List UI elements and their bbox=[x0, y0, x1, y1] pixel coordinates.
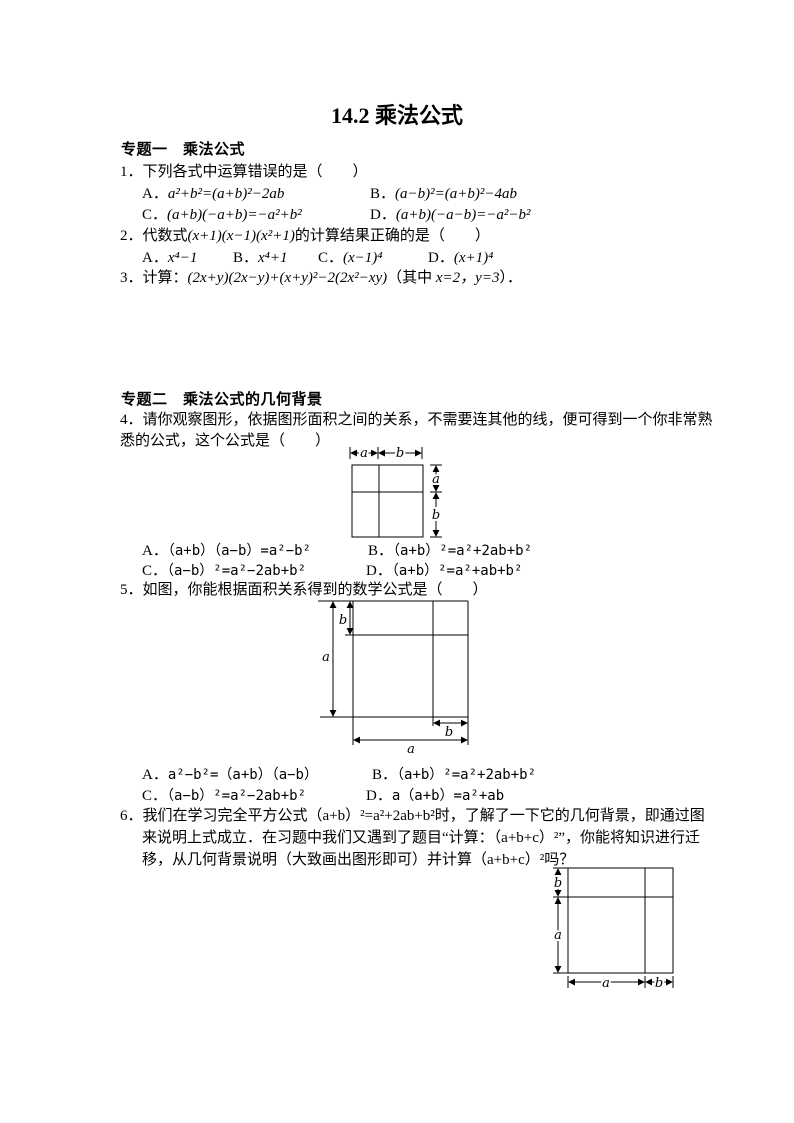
q5-option-b-label: B． bbox=[372, 767, 397, 783]
q5-option-c-formula: （a−b）²=a²−2ab+b² bbox=[167, 788, 306, 804]
q1-option-a-formula: a²+b²=(a+b)²−2ab bbox=[168, 186, 284, 202]
fig1-label-right-b: b bbox=[432, 508, 440, 523]
q1-option-b-formula: (a−b)²=(a+b)²−4ab bbox=[395, 186, 517, 202]
q2-option-b-formula: x⁴+1 bbox=[258, 250, 288, 266]
fig3-label-left-a: a bbox=[554, 928, 562, 943]
q1-option-d: D．(a+b)(−a−b)=−a²−b² bbox=[370, 203, 531, 224]
q2-option-c-label: C． bbox=[318, 250, 343, 266]
q3-condition: x=2，y=3 bbox=[436, 270, 500, 286]
q5-option-a-formula: a²−b²=（a+b）（a−b） bbox=[168, 767, 318, 783]
q5-option-b: B．（a+b）²=a²+2ab+b² bbox=[372, 763, 536, 784]
q1-option-d-label: D． bbox=[370, 207, 396, 223]
q3-math: (2x+y)(2x−y)+(x+y)²−2(2x²−xy) bbox=[188, 270, 388, 286]
q4-line2: 悉的公式，这个公式是（ ） bbox=[120, 429, 330, 450]
q2-option-a-formula: x⁴−1 bbox=[168, 250, 198, 266]
q1-option-c-formula: (a+b)(−a+b)=−a²+b² bbox=[167, 207, 302, 223]
q4-option-c-formula: （a−b）²=a²−2ab+b² bbox=[167, 563, 306, 579]
q3-suffix-close: ）． bbox=[499, 270, 522, 286]
q2-stem: 2．代数式(x+1)(x−1)(x²+1)的计算结果正确的是（ ） bbox=[120, 224, 490, 245]
q1-option-c-label: C． bbox=[142, 207, 167, 223]
q4-option-a-label: A． bbox=[142, 543, 168, 559]
q4-option-b-label: B． bbox=[368, 543, 393, 559]
q6-line2: 来说明上式成立．在习题中我们又遇到了题目“计算：（a+b+c）²”，你能将知识进… bbox=[142, 826, 700, 847]
q4-option-c-label: C． bbox=[142, 563, 167, 579]
q6-line3: 移，从几何背景说明（大致画出图形即可）并计算（a+b+c）²吗？ bbox=[142, 848, 574, 869]
fig1-label-top-b: b bbox=[396, 446, 404, 461]
worksheet-page: 14.2 乘法公式 专题一 乘法公式 1．下列各式中运算错误的是（ ） A．a²… bbox=[0, 0, 794, 1123]
q3-suffix-open: （其中 bbox=[387, 270, 436, 286]
q1-option-b: B．(a−b)²=(a+b)²−4ab bbox=[370, 182, 517, 203]
q2-option-b: B．x⁴+1 bbox=[233, 246, 288, 267]
q3-prefix: 3．计算： bbox=[120, 270, 188, 286]
q2-option-c: C．(x−1)⁴ bbox=[318, 246, 383, 267]
q4-option-d: D．（a+b）²=a²+ab+b² bbox=[366, 559, 522, 580]
fig3-label-bottom-b: b bbox=[655, 976, 663, 991]
q2-option-d-formula: (x+1)⁴ bbox=[454, 250, 494, 266]
fig2-label-bottom-b: b bbox=[445, 725, 453, 740]
q4-option-b-formula: （a+b）²=a²+2ab+b² bbox=[393, 543, 532, 559]
q4-option-d-formula: （a+b）²=a²+ab+b² bbox=[392, 563, 523, 579]
q1-option-a-label: A． bbox=[142, 186, 168, 202]
q5-option-d-formula: a（a+b）=a²+ab bbox=[392, 788, 504, 804]
q1-option-a: A．a²+b²=(a+b)²−2ab bbox=[142, 182, 284, 203]
q5-option-c: C．（a−b）²=a²−2ab+b² bbox=[142, 784, 306, 805]
q3-stem: 3．计算：(2x+y)(2x−y)+(x+y)²−2(2x²−xy)（其中 x=… bbox=[120, 266, 522, 287]
q4-line1: 4．请你观察图形，依据图形面积之间的关系，不需要连其他的线，便可得到一个你非常熟 bbox=[120, 408, 713, 429]
q1-option-c: C．(a+b)(−a+b)=−a²+b² bbox=[142, 203, 302, 224]
fig2-shaded-small-square bbox=[433, 601, 468, 635]
q1-option-b-label: B． bbox=[370, 186, 395, 202]
q2-option-d: D．(x+1)⁴ bbox=[428, 246, 493, 267]
section2-heading: 专题二 乘法公式的几何背景 bbox=[121, 388, 323, 409]
q2-option-a-label: A． bbox=[142, 250, 168, 266]
q5-option-d-label: D． bbox=[366, 788, 392, 804]
q2-option-d-label: D． bbox=[428, 250, 454, 266]
q5-option-a-label: A． bbox=[142, 767, 168, 783]
q6-line1: 6．我们在学习完全平方公式（a+b）²=a²+2ab+b²时，了解了一下它的几何… bbox=[120, 804, 705, 825]
fig2-shaded-big-square bbox=[353, 635, 433, 717]
q5-option-a: A．a²−b²=（a+b）（a−b） bbox=[142, 763, 318, 784]
figure-q6-square: b a a b bbox=[545, 862, 690, 992]
fig1-label-right-a: a bbox=[432, 472, 440, 487]
fig3-label-left-b: b bbox=[554, 876, 562, 891]
q5-option-d: D．a（a+b）=a²+ab bbox=[366, 784, 504, 805]
figure-q4-square: a b a b bbox=[340, 445, 460, 545]
fig2-label-left-b: b bbox=[339, 613, 347, 628]
q2-stem-prefix: 2．代数式 bbox=[120, 228, 188, 244]
q2-option-b-label: B． bbox=[233, 250, 258, 266]
q4-option-a-formula: （a+b）（a−b）=a²−b² bbox=[168, 543, 311, 559]
section1-heading: 专题一 乘法公式 bbox=[121, 138, 245, 159]
fig2-label-left-a: a bbox=[322, 650, 330, 665]
q1-stem-text: 1．下列各式中运算错误的是（ ） bbox=[120, 164, 368, 180]
q4-option-c: C．（a−b）²=a²−2ab+b² bbox=[142, 559, 306, 580]
figure-q5-shaded-square: b a b a bbox=[315, 595, 480, 757]
q2-option-c-formula: (x−1)⁴ bbox=[343, 250, 383, 266]
q4-option-b: B．（a+b）²=a²+2ab+b² bbox=[368, 539, 532, 560]
q2-stem-suffix: 的计算结果正确的是（ ） bbox=[295, 228, 490, 244]
fig3-label-bottom-a: a bbox=[602, 976, 610, 991]
q2-option-a: A．x⁴−1 bbox=[142, 246, 197, 267]
q1-option-d-formula: (a+b)(−a−b)=−a²−b² bbox=[396, 207, 531, 223]
q5-option-b-formula: （a+b）²=a²+2ab+b² bbox=[397, 767, 536, 783]
fig2-label-bottom-a: a bbox=[407, 742, 415, 757]
q4-option-a: A．（a+b）（a−b）=a²−b² bbox=[142, 539, 311, 560]
q1-stem: 1．下列各式中运算错误的是（ ） bbox=[120, 160, 368, 181]
fig1-label-top-a: a bbox=[360, 446, 368, 461]
page-title: 14.2 乘法公式 bbox=[0, 98, 794, 130]
q4-option-d-label: D． bbox=[366, 563, 392, 579]
q5-option-c-label: C． bbox=[142, 788, 167, 804]
q2-stem-math: (x+1)(x−1)(x²+1) bbox=[188, 228, 295, 244]
